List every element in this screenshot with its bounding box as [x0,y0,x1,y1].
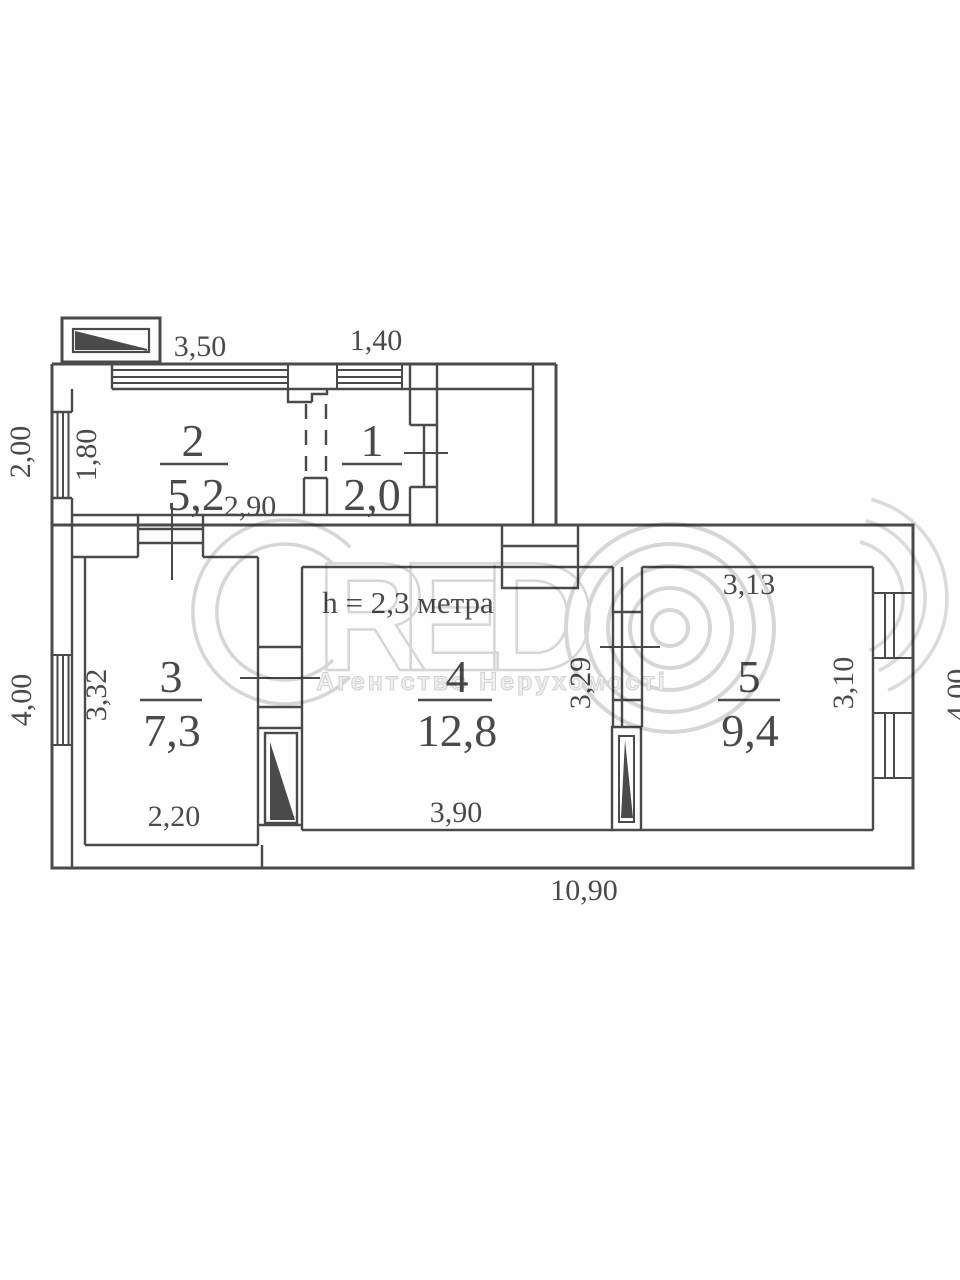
door-room3-room4 [265,733,297,823]
window-room2-top [112,364,288,389]
door-room4-room5 [612,727,641,830]
watermark-target-circles-icon [566,524,774,732]
room-label-5: 5 9,4 [718,651,780,756]
dim-annex-left-height: 2,00 [4,426,37,479]
window-room2-left [58,412,69,498]
window-room5-right-lower [873,713,913,778]
room3-area: 7,3 [143,705,201,756]
dim-room3-width: 2,20 [148,800,201,833]
floor-plan-svg: 3,50 1,40 2,00 1,80 2,90 3,32 4,00 2,20 … [0,0,960,1280]
dim-main-right-height: 4,00 [941,669,960,722]
dim-main-left-height: 4,00 [5,674,38,727]
partition-room2-room1 [304,404,327,515]
dim-room2-width: 2,90 [224,490,277,523]
opening-room2-room3 [138,515,203,557]
room2-area: 5,2 [167,469,225,520]
dim-room2-window-width: 1,80 [70,429,103,482]
room2-number: 2 [182,415,205,466]
room3-number: 3 [160,651,183,702]
room1-number: 1 [361,415,384,466]
room4-area: 12,8 [417,705,498,756]
dim-annex-top-width: 3,50 [174,330,227,363]
watermark-agency-text: Агентство Нерухомості [316,668,667,696]
window-room3-left [52,655,72,745]
dim-main-bottom-width: 10,90 [550,874,618,907]
room-label-2: 2 5,2 [160,415,228,520]
room1-area: 2,0 [343,469,401,520]
window-room1-top [337,364,402,389]
dim-room5-window-height: 3,10 [827,657,860,710]
dim-room4-width: 3,90 [430,796,483,829]
dim-room3-window-height: 3,32 [80,669,113,722]
dim-room1-top-width: 1,40 [350,324,403,357]
entry-mat-symbol [62,318,160,362]
floor-plan-page: 3,50 1,40 2,00 1,80 2,90 3,32 4,00 2,20 … [0,0,960,1280]
room-label-1: 1 2,0 [342,415,402,520]
room-label-3: 3 7,3 [140,651,202,756]
